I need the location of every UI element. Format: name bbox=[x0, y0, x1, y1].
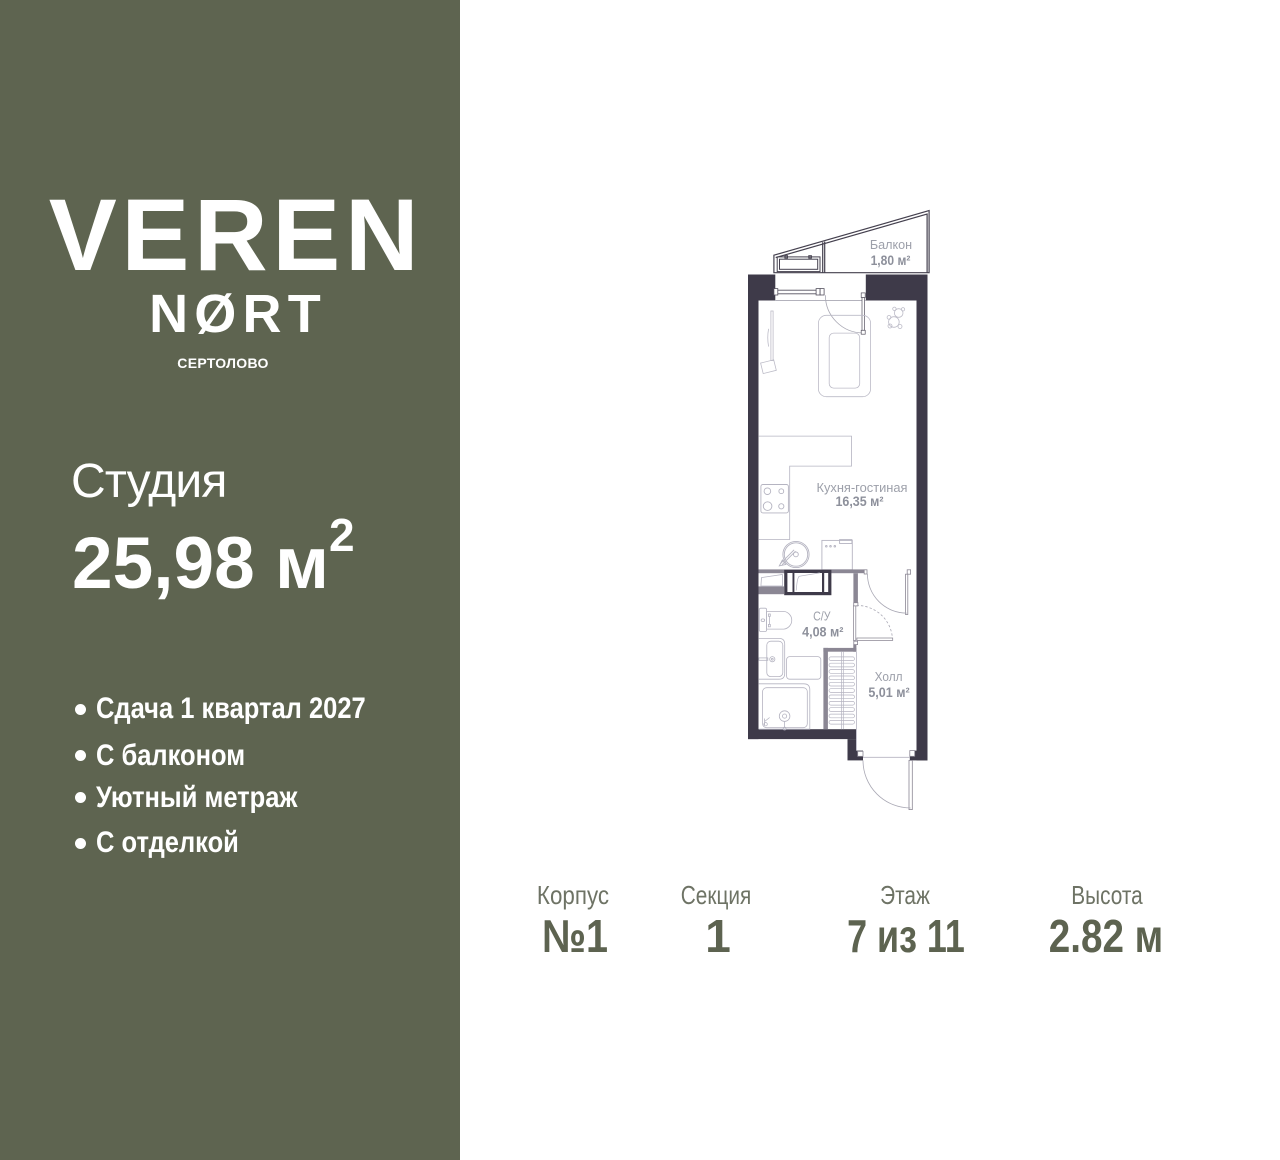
svg-text:Балкон: Балкон bbox=[870, 237, 912, 252]
svg-text:С/У: С/У bbox=[813, 608, 831, 623]
svg-text:5,01 м²: 5,01 м² bbox=[868, 685, 910, 700]
svg-text:1,80 м²: 1,80 м² bbox=[871, 253, 911, 268]
svg-text:4,08 м²: 4,08 м² bbox=[802, 625, 844, 640]
svg-text:16,35 м²: 16,35 м² bbox=[835, 494, 884, 509]
svg-text:Кухня-гостиная: Кухня-гостиная bbox=[816, 480, 907, 495]
svg-text:Холл: Холл bbox=[875, 669, 903, 684]
